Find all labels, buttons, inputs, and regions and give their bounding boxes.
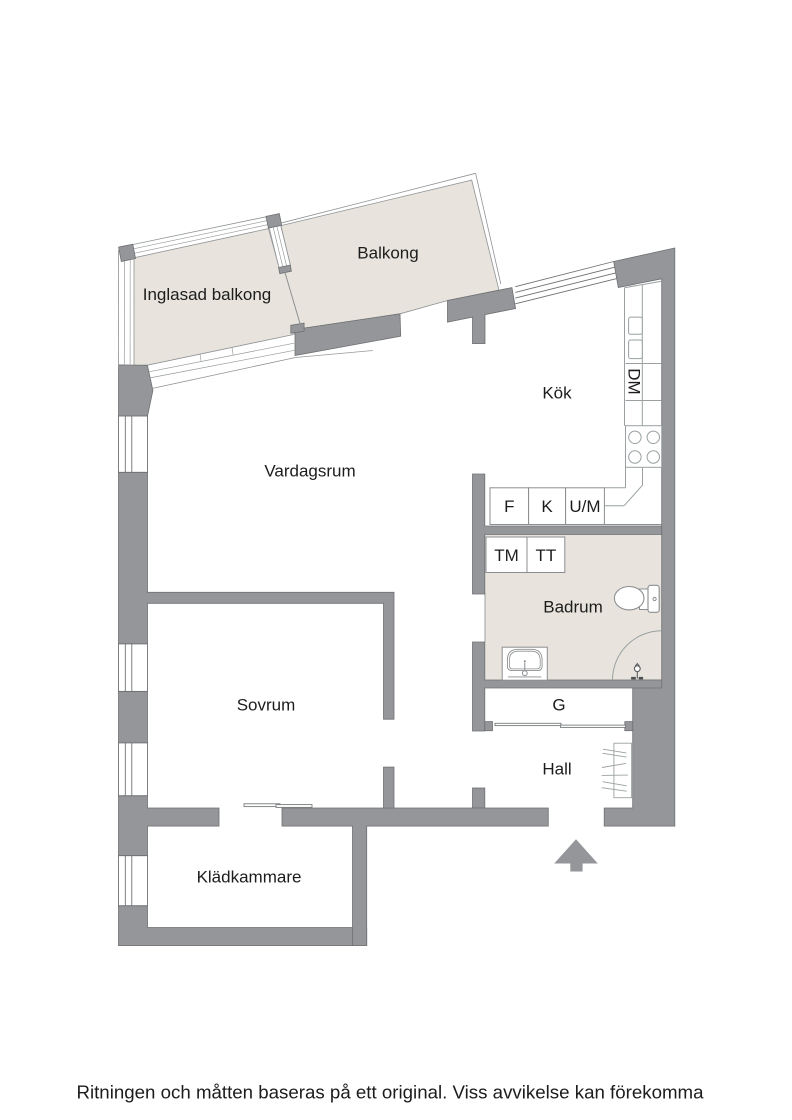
svg-text:Inglasad balkong: Inglasad balkong: [143, 285, 272, 304]
svg-text:TM: TM: [494, 546, 519, 565]
svg-text:Kök: Kök: [542, 384, 572, 403]
svg-text:Badrum: Badrum: [543, 598, 603, 617]
svg-text:K: K: [541, 497, 553, 516]
svg-text:Sovrum: Sovrum: [237, 696, 296, 715]
svg-text:Vardagsrum: Vardagsrum: [264, 462, 355, 481]
svg-text:G: G: [552, 696, 565, 715]
svg-text:F: F: [504, 497, 514, 516]
svg-text:TT: TT: [536, 546, 557, 565]
svg-text:Hall: Hall: [542, 760, 571, 779]
svg-text:Balkong: Balkong: [357, 244, 418, 263]
svg-text:U/M: U/M: [569, 497, 600, 516]
svg-text:Ritningen och måtten baseras p: Ritningen och måtten baseras på ett orig…: [76, 1082, 704, 1103]
svg-text:Klädkammare: Klädkammare: [197, 868, 302, 887]
svg-text:DM: DM: [624, 368, 643, 394]
